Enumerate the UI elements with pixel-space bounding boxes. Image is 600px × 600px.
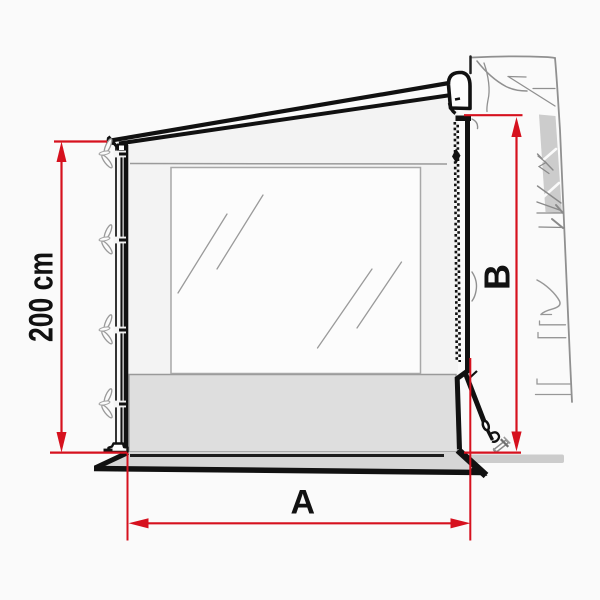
svg-text:A: A [291,484,316,522]
svg-text:200 cm: 200 cm [23,252,61,342]
svg-text:B: B [477,264,518,290]
